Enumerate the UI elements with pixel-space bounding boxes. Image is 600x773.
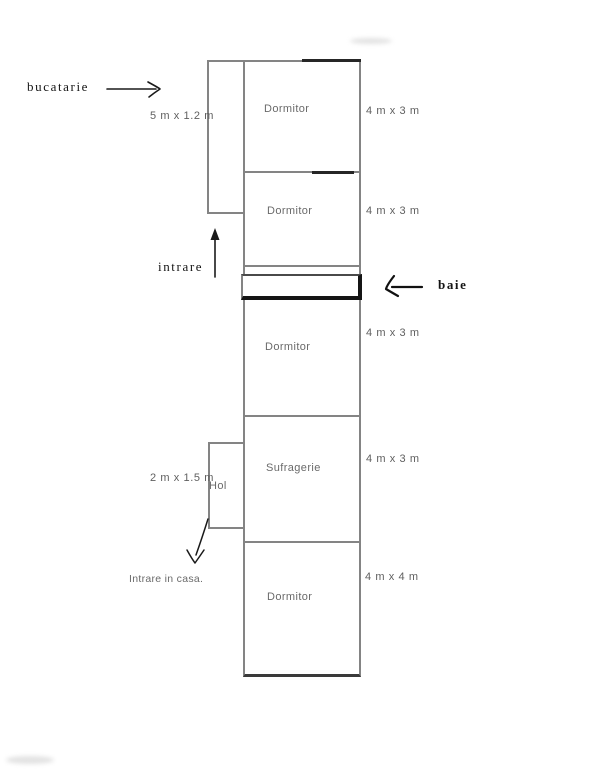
down-left-arrow-icon bbox=[187, 519, 208, 563]
annotation-bucatarie: bucatarie bbox=[27, 79, 89, 95]
label-dormitor-2: Dormitor bbox=[267, 205, 312, 217]
left-arrow-icon bbox=[386, 276, 422, 296]
dim-hol: 2 m x 1.5 m bbox=[150, 472, 214, 484]
annotation-intrare-in-casa: Intrare in casa. bbox=[129, 573, 203, 585]
right-arrow-icon bbox=[107, 82, 160, 97]
annotation-intrare: intrare bbox=[158, 259, 203, 275]
dim-dormitor-1: 4 m x 3 m bbox=[366, 105, 420, 117]
room-baie bbox=[241, 274, 362, 300]
room-bucatarie bbox=[207, 60, 245, 214]
label-dormitor-1: Dormitor bbox=[264, 103, 309, 115]
floor-plan-sketch: Dormitor Dormitor Dormitor Sufragerie Do… bbox=[0, 0, 600, 773]
room-sufragerie bbox=[243, 415, 361, 543]
room-dormitor-3 bbox=[243, 296, 361, 417]
dim-sufragerie: 4 m x 3 m bbox=[366, 453, 420, 465]
up-arrow-icon bbox=[211, 228, 220, 277]
scan-artifact bbox=[6, 756, 54, 764]
room-dormitor-1 bbox=[243, 60, 361, 173]
label-sufragerie: Sufragerie bbox=[266, 462, 321, 474]
wall-dark-segment-divider bbox=[312, 171, 354, 174]
label-dormitor-3: Dormitor bbox=[265, 341, 310, 353]
dim-dormitor-3: 4 m x 3 m bbox=[366, 327, 420, 339]
label-dormitor-4: Dormitor bbox=[267, 591, 312, 603]
dim-bucatarie: 5 m x 1.2 m bbox=[150, 110, 214, 122]
dim-dormitor-4: 4 m x 4 m bbox=[365, 571, 419, 583]
wall-dark-segment-top bbox=[302, 59, 361, 62]
dim-dormitor-2: 4 m x 3 m bbox=[366, 205, 420, 217]
room-dormitor-2 bbox=[243, 171, 361, 267]
annotation-baie: baie bbox=[438, 277, 468, 293]
scan-artifact bbox=[350, 38, 392, 44]
room-dormitor-4 bbox=[243, 541, 361, 677]
